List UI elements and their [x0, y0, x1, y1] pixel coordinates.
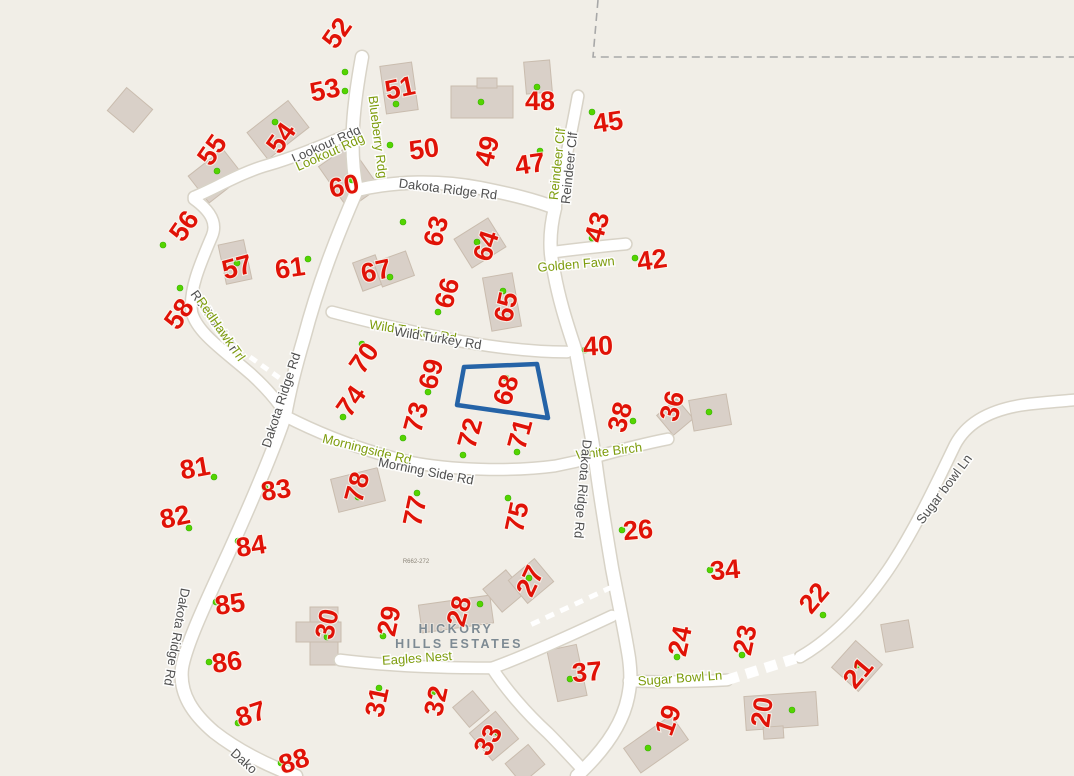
address-point-dot [177, 285, 183, 291]
address-point-dot [706, 409, 712, 415]
address-point-dot [342, 69, 348, 75]
parcel-number[interactable]: 84 [234, 529, 268, 563]
parcel-number[interactable]: 48 [525, 86, 555, 116]
parcel-number[interactable]: 37 [571, 656, 604, 689]
address-point-dot [400, 219, 406, 225]
parcel-number[interactable]: 83 [259, 473, 293, 507]
parcel-number[interactable]: 30 [309, 606, 345, 642]
address-point-dot [435, 309, 441, 315]
parcel-number[interactable]: 65 [488, 289, 524, 325]
address-point-dot [160, 242, 166, 248]
parcel-number[interactable]: 61 [273, 251, 307, 285]
address-point-dot [414, 490, 420, 496]
parcel-number[interactable]: 75 [499, 499, 535, 535]
parcel-number[interactable]: 51 [382, 70, 418, 106]
map-background[interactable] [0, 0, 1074, 776]
parcel-number[interactable]: 20 [745, 695, 779, 729]
map-viewport[interactable]: Blueberry Rdg Lookout Rdg Lookout Rdg Da… [0, 0, 1074, 776]
parcel-number[interactable]: 23 [727, 622, 763, 658]
parcel-number[interactable]: 47 [513, 147, 547, 181]
parcel-number[interactable]: 86 [210, 645, 244, 679]
address-point-dot [305, 256, 311, 262]
parcel-number[interactable]: 32 [418, 683, 454, 719]
parcel-number[interactable]: 45 [591, 105, 625, 139]
parcel-number[interactable]: 29 [371, 603, 407, 639]
address-point-dot [477, 601, 483, 607]
parcel-number[interactable]: 81 [178, 451, 213, 486]
parcel-number[interactable]: 40 [582, 330, 614, 362]
building [881, 620, 913, 652]
address-point-dot [400, 435, 406, 441]
parcel-number[interactable]: 50 [407, 132, 441, 166]
parcel-number[interactable]: 26 [622, 514, 655, 547]
parcel-number[interactable]: 53 [307, 72, 343, 108]
parcel-number[interactable]: 67 [358, 253, 394, 289]
parcel-number[interactable]: 42 [635, 243, 669, 277]
parcel-number[interactable]: 82 [157, 499, 193, 535]
parcel-number[interactable]: 34 [709, 554, 742, 587]
address-point-dot [387, 142, 393, 148]
address-point-dot [478, 99, 484, 105]
parcel-number[interactable]: 60 [326, 168, 362, 204]
address-point-dot [645, 745, 651, 751]
parcel-number[interactable]: 31 [359, 684, 395, 720]
survey-note: R662-272 [403, 559, 430, 565]
parcel-number[interactable]: 85 [213, 587, 247, 621]
address-point-dot [342, 88, 348, 94]
estate-title-line2: HILLS ESTATES [395, 637, 523, 651]
parcel-number[interactable]: 77 [397, 493, 433, 529]
map-canvas[interactable]: Blueberry Rdg Lookout Rdg Lookout Rdg Da… [0, 0, 1074, 776]
building [477, 78, 497, 88]
address-point-dot [460, 452, 466, 458]
parcel-number[interactable]: 24 [662, 623, 698, 659]
address-point-dot [789, 707, 795, 713]
